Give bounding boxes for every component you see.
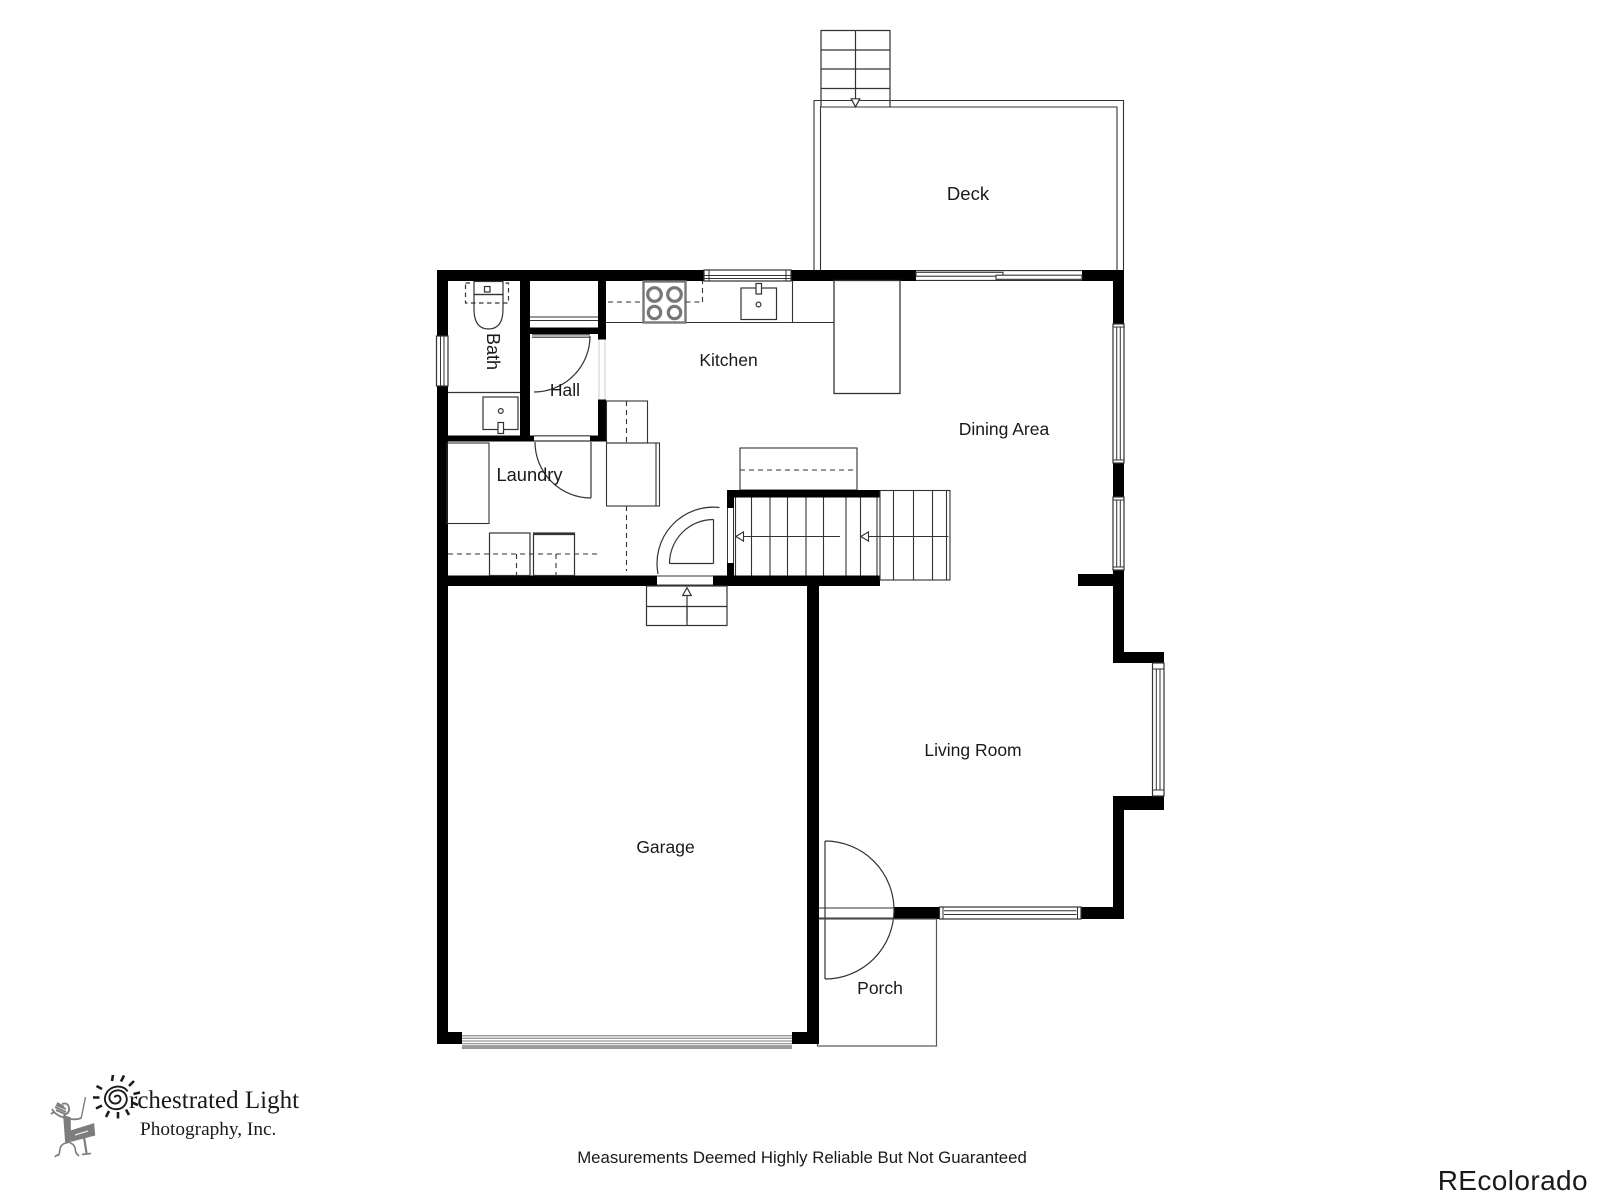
svg-text:Garage: Garage [636,837,694,857]
svg-text:Dining Area: Dining Area [959,419,1050,439]
svg-text:Living Room: Living Room [924,740,1021,760]
svg-text:Bath: Bath [483,333,503,370]
svg-text:Porch: Porch [857,978,903,998]
svg-text:Deck: Deck [947,183,990,204]
svg-text:Kitchen: Kitchen [699,350,757,370]
svg-text:Laundry: Laundry [496,464,563,485]
svg-text:rchestrated Light: rchestrated Light [129,1087,299,1114]
svg-text:Measurements Deemed Highly Rel: Measurements Deemed Highly Reliable But … [577,1148,1027,1167]
svg-text:Photography, Inc.: Photography, Inc. [140,1119,276,1140]
svg-text:REcolorado: REcolorado [1438,1165,1588,1196]
svg-text:Hall: Hall [550,380,580,400]
